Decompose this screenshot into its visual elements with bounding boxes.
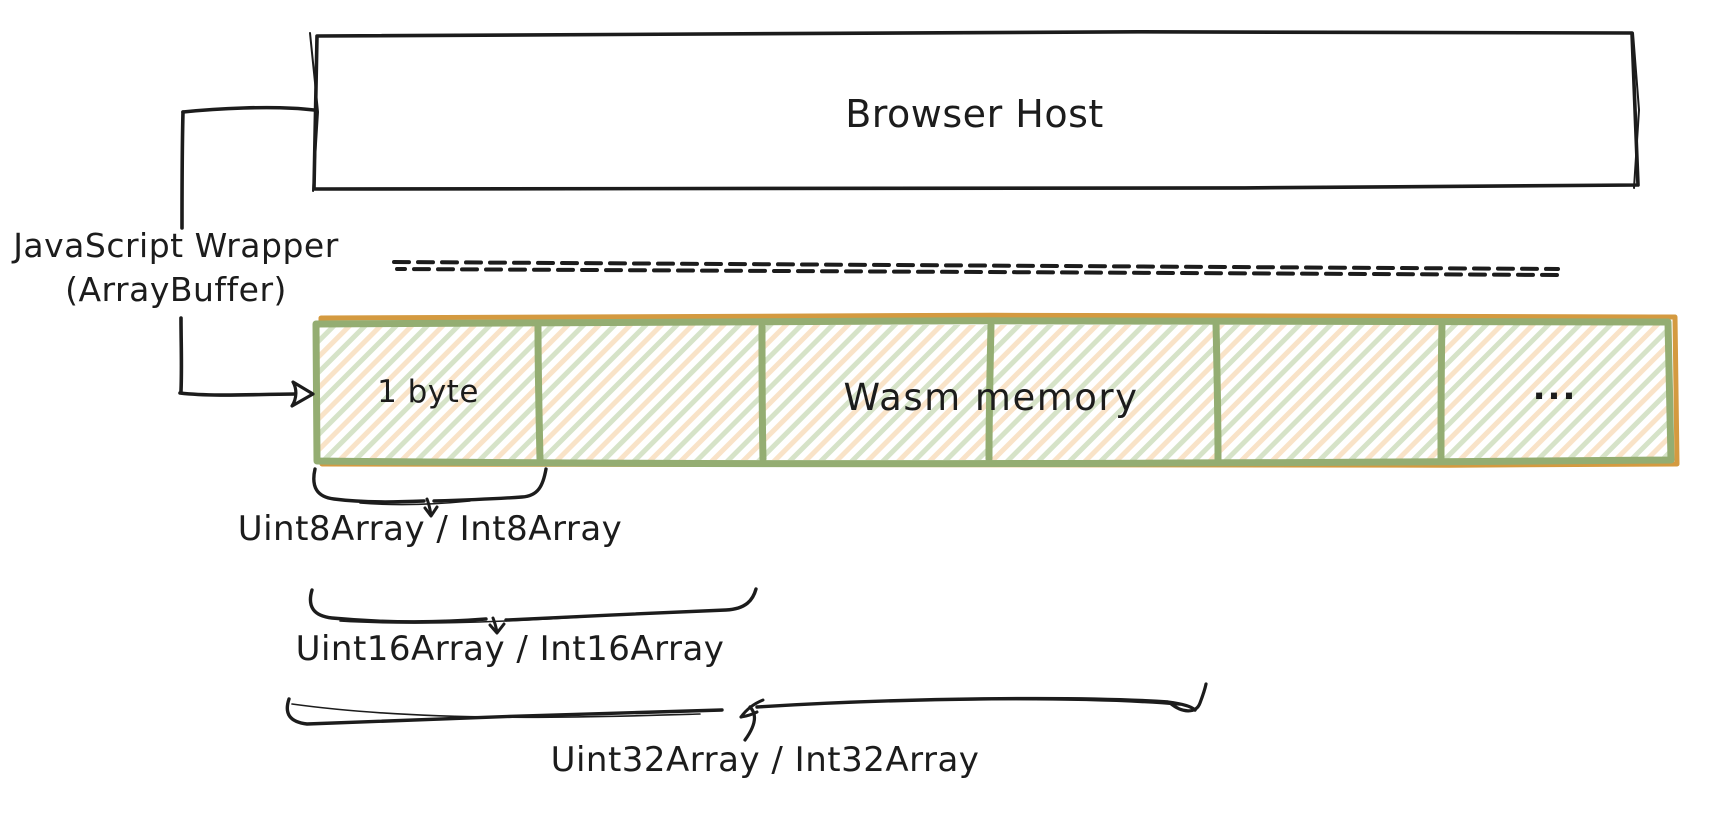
- uint8array-label: Uint8Array / Int8Array: [220, 509, 640, 549]
- connector-line-top: [183, 108, 314, 112]
- arrow-right-icon: [292, 382, 313, 406]
- wasm-memory-label: Wasm memory: [766, 376, 1216, 419]
- js-wrapper-label-line2: (ArrayBuffer): [0, 268, 352, 312]
- js-wrapper-label: JavaScript Wrapper (ArrayBuffer): [0, 224, 352, 311]
- connector-line-vertical: [182, 112, 183, 228]
- memory-cell-1byte-label: 1 byte: [317, 374, 539, 410]
- diagram-canvas: Browser Host JavaScript Wrapper (ArrayBu…: [0, 0, 1718, 814]
- uint16array-label: Uint16Array / Int16Array: [283, 629, 737, 669]
- brace-uint32: [287, 684, 1206, 740]
- memory-cell-divider: [1216, 323, 1218, 459]
- browser-host-title: Browser Host: [313, 92, 1636, 136]
- uint32array-label: Uint32Array / Int32Array: [528, 740, 1002, 780]
- wrapper-pointer-line-horizontal: [180, 393, 296, 395]
- memory-cell-ellipsis: ...: [1442, 368, 1668, 408]
- js-wrapper-label-line1: JavaScript Wrapper: [0, 224, 352, 268]
- memory-cell-divider: [762, 324, 763, 459]
- brace-uint16: [310, 589, 756, 633]
